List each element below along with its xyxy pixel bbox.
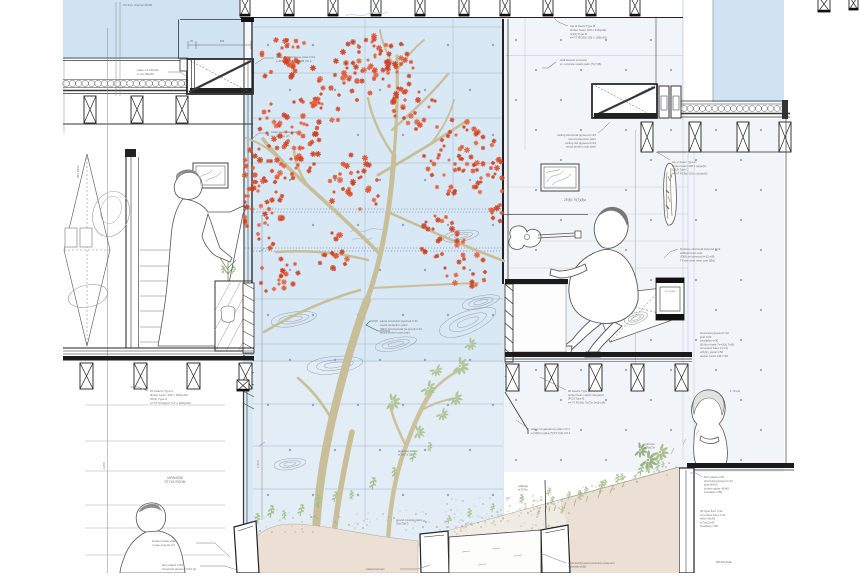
svg-text:1,711(e): 1,711(e)	[730, 389, 740, 393]
svg-text:materials (e(6)): materials (e(6))	[568, 565, 586, 569]
svg-text:w. concrete repair paint (7)(7: w. concrete repair paint (7)(7)(8)	[560, 62, 601, 66]
svg-text:3,150: 3,150	[102, 462, 106, 470]
svg-text:DRAINAGE: DRAINAGE	[716, 560, 732, 564]
svg-text:saltbage: saltbage	[518, 484, 529, 488]
svg-text:e=7/7 RC2(t)t2 7x7 x 180(e40): e=7/7 RC2(t)t2 7x7 x 180(e40)	[150, 401, 191, 405]
svg-text:insulation t=50: insulation t=50	[704, 490, 723, 494]
svg-text:insulation t=50: insulation t=50	[700, 524, 719, 528]
svg-text:structural plywood t=24 (1): structural plywood t=24 (1)	[162, 567, 196, 571]
svg-text:7th floor channel 35x35: 7th floor channel 35x35	[123, 3, 153, 7]
svg-text:plaster beam 13F t=52: plaster beam 13F t=52	[700, 354, 729, 358]
svg-text:wood protect coat paint: wood protect coat paint	[380, 331, 410, 335]
svg-text:600: 600	[220, 39, 225, 43]
svg-text:waterproof pain: waterproof pain	[366, 567, 385, 571]
svg-text:t-yose sugi-ita t=4: t-yose sugi-ita t=4	[152, 543, 175, 547]
svg-text:(7)e(7)e(7): (7)e(7)e(7)	[396, 522, 409, 526]
svg-text:wood protect coat paint: wood protect coat paint	[566, 145, 596, 149]
svg-text:2F(8) / R(7)(8)a: 2F(8) / R(7)(8)a	[564, 198, 586, 202]
svg-text:e=4(6)(1) gal-e(7)(7)(7)(2): e=4(6)(1) gal-e(7)(7)(7)(2) t=0.4	[531, 431, 571, 435]
svg-text:1,510: 1,510	[256, 460, 260, 468]
svg-text:approach(8) wash protective p: approach(8) wash protective pavement	[568, 561, 615, 565]
svg-text:e=7/7 RC8(t) 105 x 105(e42): e=7/7 RC8(t) 105 x 105(e42)	[570, 36, 607, 40]
svg-text:STYLE ROOM: STYLE ROOM	[165, 480, 186, 484]
svg-text:cytomole: cytomole	[644, 442, 655, 446]
svg-text:TV e(7)(8)e: TV e(7)(8)e	[664, 291, 676, 293]
svg-text:TV tan-clear resin coat (8)(t): TV tan-clear resin coat (8)(t)	[680, 258, 715, 262]
svg-text:e(7)e(7)e: e(7)e(7)e	[644, 446, 656, 450]
svg-text:852 500A: 852 500A	[76, 165, 80, 178]
svg-text:ground covering plants: ground covering plants	[396, 518, 423, 522]
svg-text:e=7/7 RC8(t) 105 x (t)(d)e(6): e=7/7 RC8(t) 105 x (t)(d)e(6)	[672, 171, 708, 175]
svg-text:e=7/7 RC8(t) 7e(7)x 2e(t)-e(6): e=7/7 RC8(t) 7e(7)x 2e(t)-e(6)	[568, 400, 605, 404]
svg-text:w-cut 150x30: w-cut 150x30	[137, 72, 154, 76]
svg-text:e(7)(7)e: e(7)(7)e	[518, 488, 528, 492]
